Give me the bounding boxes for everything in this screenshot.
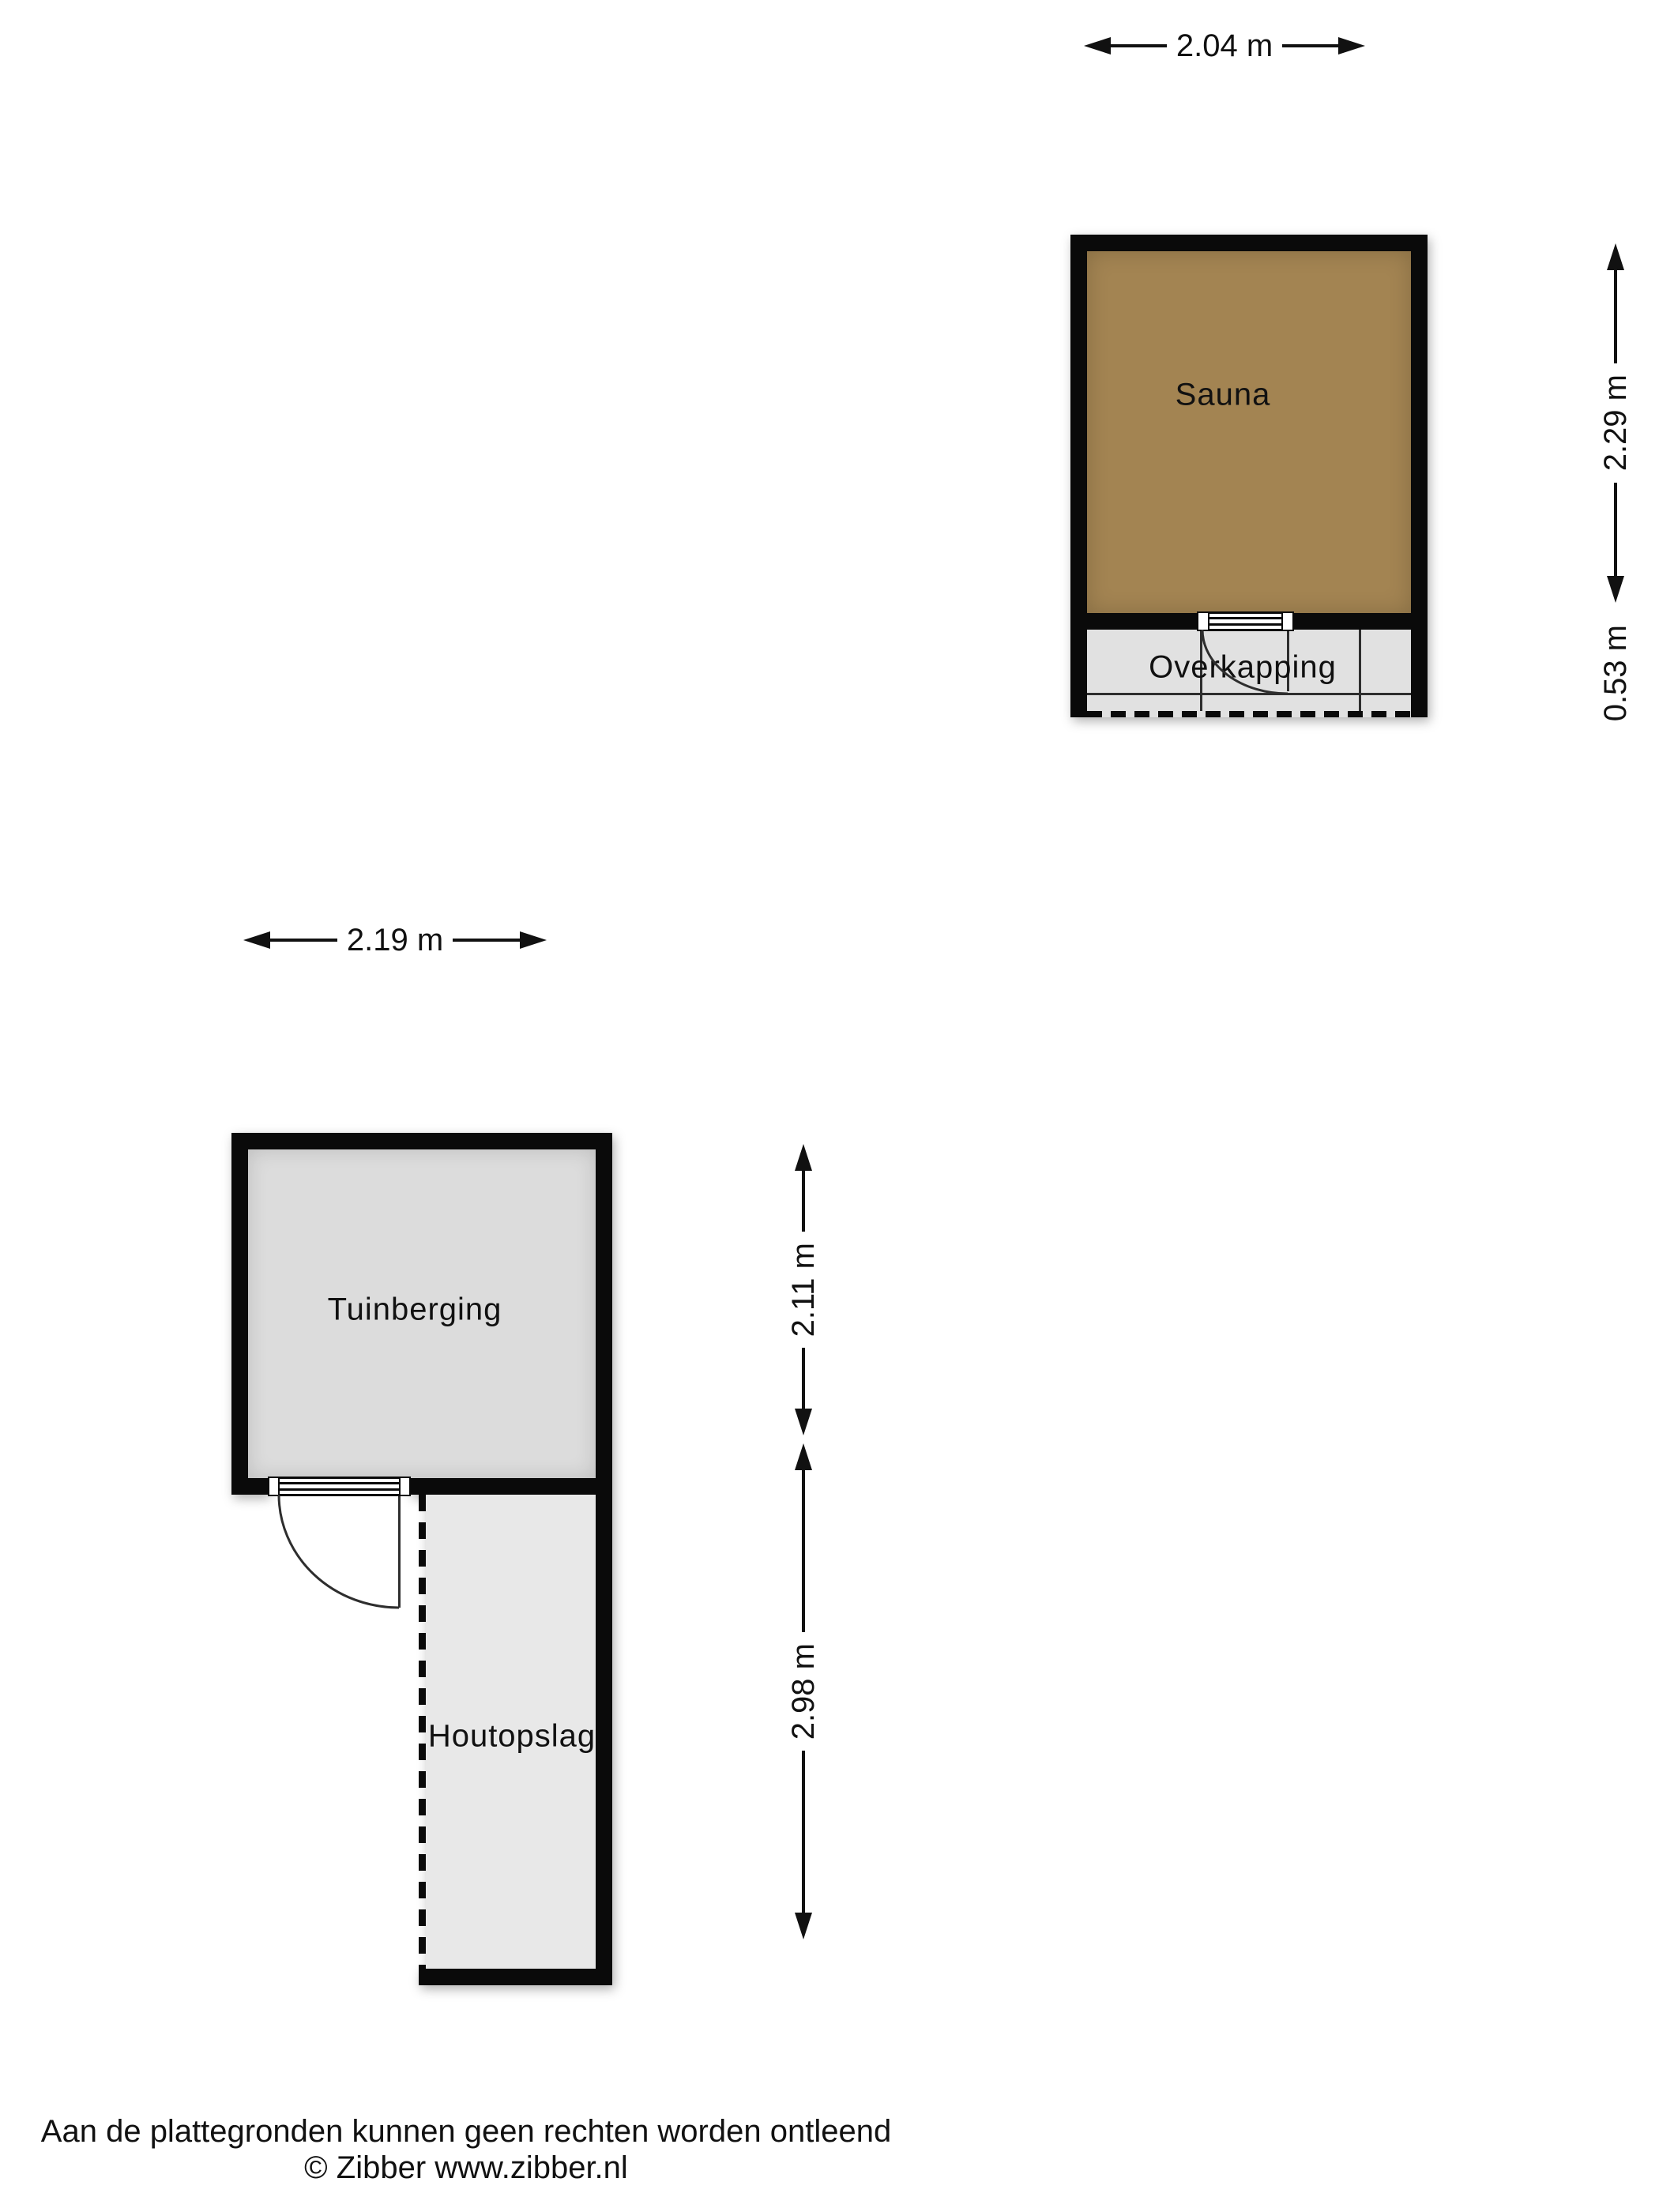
canopy-open-edge-dashed	[1087, 711, 1411, 717]
arrowhead-up-icon	[795, 1144, 812, 1171]
copyright-text: © Zibber www.zibber.nl	[0, 2150, 932, 2186]
room-label-sauna: Sauna	[1176, 378, 1271, 413]
shed-door-unit	[280, 1477, 399, 1496]
canopy-post-line-right	[1359, 630, 1361, 711]
dim-label-shed-height: 2.11 m	[786, 1232, 822, 1348]
dim-storage-height: 2.98 m	[786, 1443, 821, 1939]
shed-door-jamb-right	[399, 1477, 411, 1496]
shed-building-details: Tuinberging Houtopslag	[231, 1133, 612, 1985]
arrowhead-down-icon	[795, 1409, 812, 1435]
footer: Aan de plattegronden kunnen geen rechten…	[0, 2113, 932, 2186]
arrowhead-up-icon	[795, 1443, 812, 1470]
arrowhead-right-icon	[520, 931, 547, 949]
sauna-door-jamb-left	[1197, 611, 1209, 631]
arrowhead-down-icon	[795, 1913, 812, 1939]
room-label-tuinberging: Tuinberging	[328, 1292, 502, 1328]
sauna-door-jamb-right	[1281, 611, 1294, 631]
dim-label-sauna-height: 2.29 m	[1598, 363, 1634, 482]
room-label-houtopslag: Houtopslag	[428, 1719, 596, 1755]
dim-label-storage-height: 2.98 m	[786, 1632, 822, 1751]
arrowhead-left-icon	[1084, 37, 1111, 55]
arrowhead-left-icon	[243, 931, 270, 949]
sauna-door-unit	[1209, 611, 1282, 631]
canopy-edge-line	[1087, 693, 1411, 695]
arrowhead-right-icon	[1338, 37, 1365, 55]
shed-door-leaf	[398, 1495, 401, 1608]
dim-label-shed-width: 2.19 m	[337, 923, 453, 958]
shed-door-jamb-left	[268, 1477, 280, 1496]
dim-label-sauna-width: 2.04 m	[1167, 28, 1282, 64]
shed-building: Tuinberging Houtopslag	[231, 1133, 612, 1985]
disclaimer-text: Aan de plattegronden kunnen geen rechten…	[0, 2113, 932, 2150]
dim-shed-height: 2.11 m	[786, 1144, 821, 1435]
dim-shed-width: 2.19 m	[243, 923, 547, 957]
sauna-building-details: Sauna Overkapping	[1070, 235, 1428, 717]
room-label-overkapping: Overkapping	[1149, 650, 1337, 686]
sauna-building: Sauna Overkapping	[1070, 235, 1428, 717]
dim-sauna-width: 2.04 m	[1084, 28, 1365, 63]
storage-open-edge-dashed	[419, 1495, 426, 1969]
dim-canopy-height: 0.53 m	[1598, 618, 1633, 728]
floorplan-canvas: Sauna Overkapping Tuinberging Houtopslag	[0, 0, 1659, 2212]
arrowhead-up-icon	[1607, 243, 1624, 270]
dim-sauna-height: 2.29 m	[1598, 243, 1633, 603]
arrowhead-down-icon	[1607, 576, 1624, 603]
dim-label-canopy-height: 0.53 m	[1598, 614, 1634, 732]
